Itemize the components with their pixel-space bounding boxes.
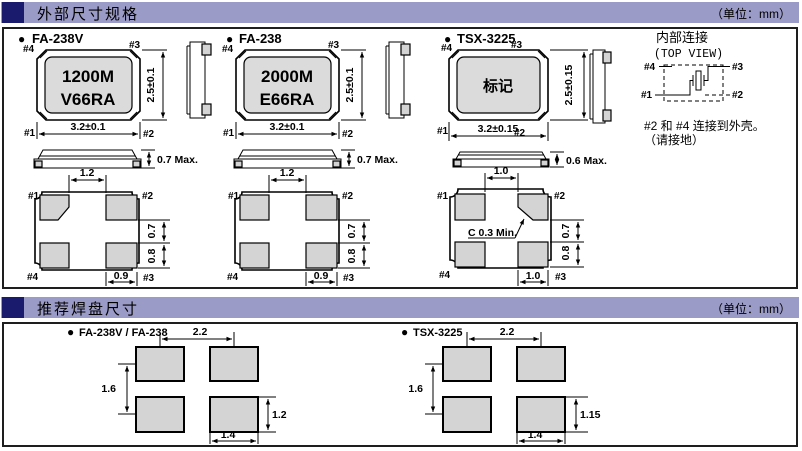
section-marker-square — [2, 297, 24, 318]
fa238v-marking-line1: 1200M — [62, 67, 114, 86]
fa238v-title: FA-238V — [32, 31, 84, 46]
fa238v-height-label: 2.5±0.1 — [145, 67, 157, 102]
fa238v-side-view — [187, 42, 211, 118]
pin-label-2: #2 — [143, 129, 155, 140]
tsx3225-top-gap-label: 1.0 — [494, 165, 509, 177]
pin-label-3: #3 — [129, 40, 141, 51]
tsx-land-title: TSX-3225 — [413, 327, 463, 339]
fa238-right-dimensions: 0.7 0.8 — [338, 220, 370, 268]
pin-label-4: #4 — [441, 43, 453, 54]
pin-label-3: #3 — [732, 62, 744, 73]
fa238-pad-height-label: 0.8 — [346, 249, 358, 264]
fa238-pad-width-label: 0.9 — [314, 270, 329, 282]
internal-connection-subtitle: (TOP VIEW) — [654, 48, 723, 61]
fa238-side-view — [386, 42, 410, 118]
fa-land-pattern: ● FA-238V / FA-238 2.2 1.6 1.2 1.4 — [67, 326, 287, 444]
tsx3225-height-dimension: 2.5±0.15 — [550, 50, 588, 120]
fa238v-pad4 — [40, 243, 69, 268]
pin-label-4: #4 — [27, 272, 39, 283]
fa238-pad3 — [306, 243, 337, 268]
fa238-width-label: 3.2±0.1 — [270, 121, 305, 133]
pin-label-3: #3 — [511, 40, 523, 51]
tsx3225-pad2-chamfered — [518, 194, 548, 220]
fa238-pad1 — [240, 195, 269, 220]
section-title-external: 外部尺寸规格 — [37, 3, 139, 24]
fa238v-top-gap-label: 1.2 — [80, 167, 95, 179]
pin-label-2: #2 — [732, 90, 744, 101]
fa238-thickness-label: 0.7 Max. — [357, 154, 398, 166]
tsx3225-title: TSX-3225 — [457, 31, 516, 46]
pin-label-2: #2 — [342, 129, 354, 140]
fa-pitch-x-dimension: 2.2 — [160, 326, 234, 347]
tsx3225-pad1 — [455, 194, 485, 220]
fa-pitch-y-dimension: 1.6 — [101, 364, 136, 414]
tsx3225-chamfer-label: C 0.3 Min. — [468, 227, 517, 239]
tsx-pad-height-dimension: 1.15 — [565, 397, 601, 432]
fa-pitch-x-label: 2.2 — [193, 326, 208, 338]
land-pad — [517, 347, 565, 381]
land-pad — [210, 397, 258, 432]
bullet-icon: ● — [67, 326, 74, 339]
fa238-pad2 — [306, 195, 337, 220]
crystal-symbol — [693, 71, 704, 90]
tsx-pitch-x-label: 2.2 — [500, 326, 515, 338]
fa238v-height-dimension: 2.5±0.1 — [142, 50, 167, 120]
land-pad — [210, 347, 258, 381]
pin-label-1: #1 — [24, 128, 36, 139]
land-pad — [136, 397, 184, 432]
pin-label-3: #3 — [143, 273, 155, 284]
tsx3225-width-dimension: 3.2±0.15 — [449, 122, 548, 141]
fa238v-bottom-view: #1 #2 #4 #3 1.2 0.7 0.8 0.9 — [27, 167, 170, 286]
case-ground-note-line2: （请接地） — [644, 132, 704, 147]
fa-land-title: FA-238V / FA-238 — [79, 327, 168, 339]
pin-label-4: #4 — [23, 44, 35, 55]
section-header-land: 推荐焊盘尺寸 （单位：mm） — [1, 297, 799, 318]
tsx-pitch-y-dimension: 1.6 — [408, 364, 443, 414]
fa238v-pad2 — [106, 195, 137, 220]
tsx3225-width-label: 3.2±0.15 — [478, 123, 519, 135]
unit-note-external: （单位：mm） — [711, 5, 791, 22]
tsx3225-side-profile: 0.6 Max. — [453, 152, 607, 167]
fa238-top-gap-dimension: 1.2 — [269, 167, 306, 193]
fa-pitch-y-label: 1.6 — [101, 383, 116, 395]
fa238v-thickness-label: 0.7 Max. — [157, 154, 198, 166]
fa238-height-dimension: 2.5±0.1 — [341, 50, 366, 120]
fa238v-width-label: 3.2±0.1 — [71, 121, 106, 133]
fa238-pad4 — [240, 243, 269, 268]
tsx3225-pad-gap-label: 0.7 — [560, 224, 572, 239]
land-pad — [443, 347, 491, 381]
fa-pad-height-dimension: 1.2 — [258, 397, 287, 432]
fa238v-side-profile: 0.7 Max. — [34, 150, 198, 168]
land-pad — [443, 397, 491, 432]
internal-connection-title: 内部连接 — [656, 30, 708, 45]
tsx3225-thickness-label: 0.6 Max. — [566, 155, 607, 167]
tsx3225-pad3 — [518, 242, 548, 267]
bullet-icon: ● — [401, 326, 408, 339]
section-title-land: 推荐焊盘尺寸 — [37, 298, 139, 319]
tsx3225-pad-width-label: 1.0 — [526, 270, 541, 282]
fa238-marking-line2: E66RA — [260, 90, 315, 109]
pin-label-3: #3 — [555, 272, 567, 283]
tsx3225-pad-height-label: 0.8 — [560, 246, 572, 261]
land-pattern-drawing: ● FA-238V / FA-238 2.2 1.6 1.2 1.4 ● T — [4, 326, 795, 446]
fa238-top-view: ● FA-238 2000M E66RA #4 #3 #1 #2 3.2±0.1… — [222, 31, 410, 140]
tsx3225-pad4 — [455, 242, 485, 267]
fa238-width-dimension: 3.2±0.1 — [236, 121, 339, 139]
land-pad — [136, 347, 184, 381]
tsx3225-side-view — [590, 50, 611, 123]
fa238v-right-dimensions: 0.7 0.8 — [138, 220, 170, 268]
fa238v-top-view: ● FA-238V 1200M V66RA #4 #3 #1 #2 3.2±0.… — [18, 31, 211, 140]
pin-label-2: #2 — [142, 191, 154, 202]
fa238-side-profile: 0.7 Max. — [234, 150, 398, 168]
fa238-marking-line1: 2000M — [261, 67, 313, 86]
fa-pad-width-label: 1.4 — [221, 429, 236, 441]
fa238v-pad-width-label: 0.9 — [114, 270, 129, 282]
tsx-pad-width-label: 1.4 — [528, 429, 543, 441]
pin-label-1: #1 — [228, 191, 240, 202]
fa238-height-label: 2.5±0.1 — [344, 67, 356, 102]
land-pad — [517, 397, 565, 432]
tsx-land-pattern: ● TSX-3225 2.2 1.6 1.15 1.4 — [401, 326, 601, 444]
external-dimensions-panel: ● FA-238V 1200M V66RA #4 #3 #1 #2 3.2±0.… — [2, 27, 798, 289]
pin-label-1: #1 — [437, 126, 449, 137]
fa238v-pad-gap-label: 0.7 — [146, 224, 158, 239]
pin-label-1: #1 — [437, 191, 449, 202]
internal-connection: 内部连接 (TOP VIEW) #4 #3 #1 #2 #2 和 #4 连接到外… — [641, 30, 765, 147]
tsx3225-right-dimensions: 0.7 0.8 — [550, 220, 584, 267]
pin-label-3: #3 — [343, 273, 355, 284]
fa-pad-height-label: 1.2 — [272, 409, 287, 421]
tsx3225-top-view: ● TSX-3225 标记 #4 #3 #1 #2 3.2±0.15 2.5±0… — [437, 31, 611, 141]
fa238-title: FA-238 — [239, 31, 282, 46]
land-pattern-panel: ● FA-238V / FA-238 2.2 1.6 1.2 1.4 ● T — [2, 322, 798, 447]
section-marker-square — [2, 2, 24, 23]
fa238v-pad-height-label: 0.8 — [146, 249, 158, 264]
tsx3225-height-label: 2.5±0.15 — [563, 64, 575, 105]
fa238v-pad1-chamfered — [40, 195, 69, 220]
pin-label-4: #4 — [222, 44, 234, 55]
pin-label-1: #1 — [223, 128, 235, 139]
section-header-external: 外部尺寸规格 （单位：mm） — [1, 2, 799, 23]
pin-label-4: #4 — [644, 62, 656, 73]
pin-label-4: #4 — [439, 270, 451, 281]
external-dimensions-drawing: ● FA-238V 1200M V66RA #4 #3 #1 #2 3.2±0.… — [4, 29, 795, 286]
pin-label-2: #2 — [554, 191, 566, 202]
tsx-pitch-y-label: 1.6 — [408, 383, 423, 395]
case-ground-note-line1: #2 和 #4 连接到外壳。 — [644, 118, 765, 133]
unit-note-land: （单位：mm） — [711, 300, 791, 317]
tsx3225-bottom-view: #1 #2 #4 #3 C 0.3 Min. 1.0 0.7 0.8 1.0 — [437, 165, 584, 286]
pin-label-3: #3 — [328, 40, 340, 51]
fa238-bottom-view: #1 #2 #4 #3 1.2 0.7 0.8 0.9 — [227, 167, 370, 286]
tsx-pitch-x-dimension: 2.2 — [467, 326, 541, 347]
tsx3225-marking: 标记 — [482, 77, 513, 95]
pin-label-4: #4 — [227, 272, 239, 283]
fa238-pad-gap-label: 0.7 — [346, 224, 358, 239]
fa238v-marking-line2: V66RA — [61, 90, 116, 109]
fa238v-pad3 — [106, 243, 137, 268]
tsx3225-top-gap-dimension: 1.0 — [485, 165, 518, 192]
pin-label-1: #1 — [641, 90, 653, 101]
tsx3225-pad-width-dimension: 1.0 — [518, 270, 548, 286]
fa238-pad-width-dimension: 0.9 — [306, 270, 337, 286]
pin-label-2: #2 — [342, 191, 354, 202]
tsx-pad-height-label: 1.15 — [580, 409, 601, 421]
pin-label-1: #1 — [28, 191, 40, 202]
fa238-top-gap-label: 1.2 — [280, 167, 295, 179]
tsx3225-chamfer-callout: C 0.3 Min. — [468, 219, 524, 239]
fa238v-width-dimension: 3.2±0.1 — [37, 121, 140, 139]
fa238v-top-gap-dimension: 1.2 — [69, 167, 106, 193]
fa238v-pad-width-dimension: 0.9 — [106, 270, 137, 286]
